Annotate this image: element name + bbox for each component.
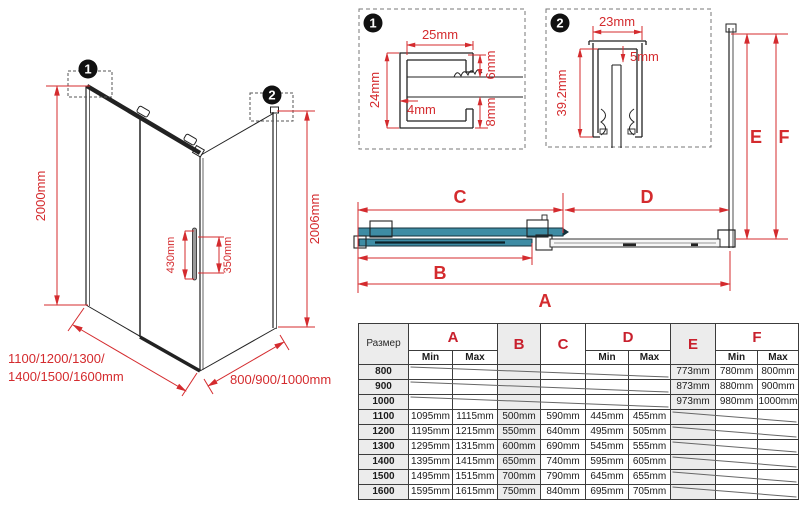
table-cell: 1495mm [409, 470, 453, 485]
plan-structure [354, 24, 736, 250]
table-cell: 873mm [671, 380, 716, 395]
callout-1-badge: 1 [79, 60, 98, 79]
callout-2-badge: 2 [263, 86, 282, 105]
table-cell [498, 395, 541, 410]
isometric-view: 1 2 2000mm 2006mm 430mm 350mm [0, 0, 358, 405]
table-cell: 600mm [498, 440, 541, 455]
table-cell [453, 395, 498, 410]
table-cell [716, 440, 758, 455]
table-cell [671, 410, 716, 425]
table-cell [541, 395, 586, 410]
enclosure-frame [86, 86, 279, 371]
table-cell: 655mm [629, 470, 671, 485]
table-cell: 1295mm [409, 440, 453, 455]
table-cell: 505mm [629, 425, 671, 440]
table-cell: 750mm [498, 485, 541, 500]
spec-table: Размер A B C D E F Min Max Min Max Min M… [358, 323, 799, 500]
row-size-label: 1100 [359, 410, 409, 425]
dim-b-label: B [434, 263, 447, 283]
table-cell: 880mm [716, 380, 758, 395]
table-cell [586, 395, 629, 410]
table-cell: 545mm [586, 440, 629, 455]
table-row: 800773mm780mm800mm [359, 365, 799, 380]
table-cell [541, 380, 586, 395]
table-cell: 700mm [498, 470, 541, 485]
col-header-d: D [586, 324, 671, 351]
col-header-d-min: Min [586, 351, 629, 365]
row-size-label: 1200 [359, 425, 409, 440]
table-cell [758, 410, 799, 425]
table-cell [671, 425, 716, 440]
table-cell: 555mm [629, 440, 671, 455]
table-cell [498, 365, 541, 380]
table-cell: 980mm [716, 395, 758, 410]
front-width-label-1: 1100/1200/1300/ [8, 351, 105, 366]
table-cell [758, 485, 799, 500]
table-cell [716, 410, 758, 425]
height-left-label: 2000mm [33, 171, 48, 222]
front-width-label-2: 1400/1500/1600mm [8, 369, 124, 384]
col-header-a: A [409, 324, 498, 351]
dim-e-label: E [750, 127, 762, 147]
table-cell [716, 455, 758, 470]
table-cell: 800mm [758, 365, 799, 380]
table-cell: 455mm [629, 410, 671, 425]
col-header-f-max: Max [758, 351, 799, 365]
table-row: 13001295mm1315mm600mm690mm545mm555mm [359, 440, 799, 455]
table-cell: 840mm [541, 485, 586, 500]
table-cell: 1115mm [453, 410, 498, 425]
dim-c-label: C [454, 187, 467, 207]
col-header-e: E [671, 324, 716, 365]
table-cell [586, 365, 629, 380]
table-cell: 1195mm [409, 425, 453, 440]
table-cell [498, 380, 541, 395]
col-header-d-max: Max [629, 351, 671, 365]
plan-view: C D B A E F [350, 15, 800, 313]
row-size-label: 1500 [359, 470, 409, 485]
side-width-label: 800/900/1000mm [230, 372, 331, 387]
table-cell: 690mm [541, 440, 586, 455]
col-header-f-min: Min [716, 351, 758, 365]
table-row: 11001095mm1115mm500mm590mm445mm455mm [359, 410, 799, 425]
drawing-sheet: 1 2 2000mm 2006mm 430mm 350mm [0, 0, 800, 512]
table-cell [758, 440, 799, 455]
table-cell [586, 380, 629, 395]
table-cell: 1515mm [453, 470, 498, 485]
table-cell: 605mm [629, 455, 671, 470]
table-cell [758, 455, 799, 470]
row-size-label: 800 [359, 365, 409, 380]
row-size-label: 1400 [359, 455, 409, 470]
table-cell: 645mm [586, 470, 629, 485]
dim-f-label: F [779, 127, 790, 147]
table-row: 14001395mm1415mm650mm740mm595mm605mm [359, 455, 799, 470]
table-cell [629, 380, 671, 395]
table-cell: 445mm [586, 410, 629, 425]
table-row: 16001595mm1615mm750mm840mm695mm705mm [359, 485, 799, 500]
table-cell: 790mm [541, 470, 586, 485]
table-cell [758, 470, 799, 485]
table-row: 12001195mm1215mm550mm640mm495mm505mm [359, 425, 799, 440]
door-handle [193, 228, 197, 280]
table-cell: 550mm [498, 425, 541, 440]
table-cell: 500mm [498, 410, 541, 425]
header-row-letters: Размер A B C D E F [359, 324, 799, 351]
table-cell [671, 485, 716, 500]
table-cell: 590mm [541, 410, 586, 425]
col-header-f: F [716, 324, 799, 351]
table-cell: 640mm [541, 425, 586, 440]
table-cell [671, 470, 716, 485]
table-cell: 650mm [498, 455, 541, 470]
table-cell: 1315mm [453, 440, 498, 455]
table-cell: 595mm [586, 455, 629, 470]
col-header-a-max: Max [453, 351, 498, 365]
table-cell [409, 380, 453, 395]
table-cell: 1615mm [453, 485, 498, 500]
row-size-label: 1600 [359, 485, 409, 500]
table-cell: 695mm [586, 485, 629, 500]
dim-a-label: A [539, 291, 552, 311]
table-cell: 705mm [629, 485, 671, 500]
table-cell: 1000mm [758, 395, 799, 410]
table-cell: 900mm [758, 380, 799, 395]
table-cell: 780mm [716, 365, 758, 380]
row-size-label: 1000 [359, 395, 409, 410]
table-cell [541, 365, 586, 380]
svg-text:1: 1 [84, 62, 91, 77]
table-cell [716, 485, 758, 500]
col-header-a-min: Min [409, 351, 453, 365]
handle-holes-label: 350mm [222, 237, 234, 274]
table-cell [671, 440, 716, 455]
table-cell: 1215mm [453, 425, 498, 440]
table-row: 1000973mm980mm1000mm [359, 395, 799, 410]
table-cell: 495mm [586, 425, 629, 440]
table-cell [629, 395, 671, 410]
table-cell: 973mm [671, 395, 716, 410]
table-cell [453, 380, 498, 395]
table-cell: 1095mm [409, 410, 453, 425]
table-cell: 1595mm [409, 485, 453, 500]
row-size-label: 900 [359, 380, 409, 395]
table-cell [453, 365, 498, 380]
sliding-door-glass [358, 228, 563, 236]
table-cell [671, 455, 716, 470]
handle-length-label: 430mm [165, 237, 177, 274]
svg-text:2: 2 [268, 88, 275, 103]
spec-table-body: 800773mm780mm800mm900873mm880mm900mm1000… [359, 365, 799, 500]
plan-dimensions: C D B A E F [358, 34, 790, 311]
table-cell: 740mm [541, 455, 586, 470]
table-row: 900873mm880mm900mm [359, 380, 799, 395]
table-cell [716, 470, 758, 485]
table-cell: 1395mm [409, 455, 453, 470]
row-size-label: 1300 [359, 440, 409, 455]
table-cell [409, 395, 453, 410]
height-right-label: 2006mm [307, 194, 322, 245]
table-cell: 1415mm [453, 455, 498, 470]
dim-d-label: D [641, 187, 654, 207]
table-cell: 773mm [671, 365, 716, 380]
table-cell [629, 365, 671, 380]
table-cell [409, 365, 453, 380]
table-cell [716, 425, 758, 440]
table-cell [758, 425, 799, 440]
table-row: 15001495mm1515mm700mm790mm645mm655mm [359, 470, 799, 485]
col-header-size: Размер [359, 324, 409, 365]
col-header-b: B [498, 324, 541, 365]
col-header-c: C [541, 324, 586, 365]
